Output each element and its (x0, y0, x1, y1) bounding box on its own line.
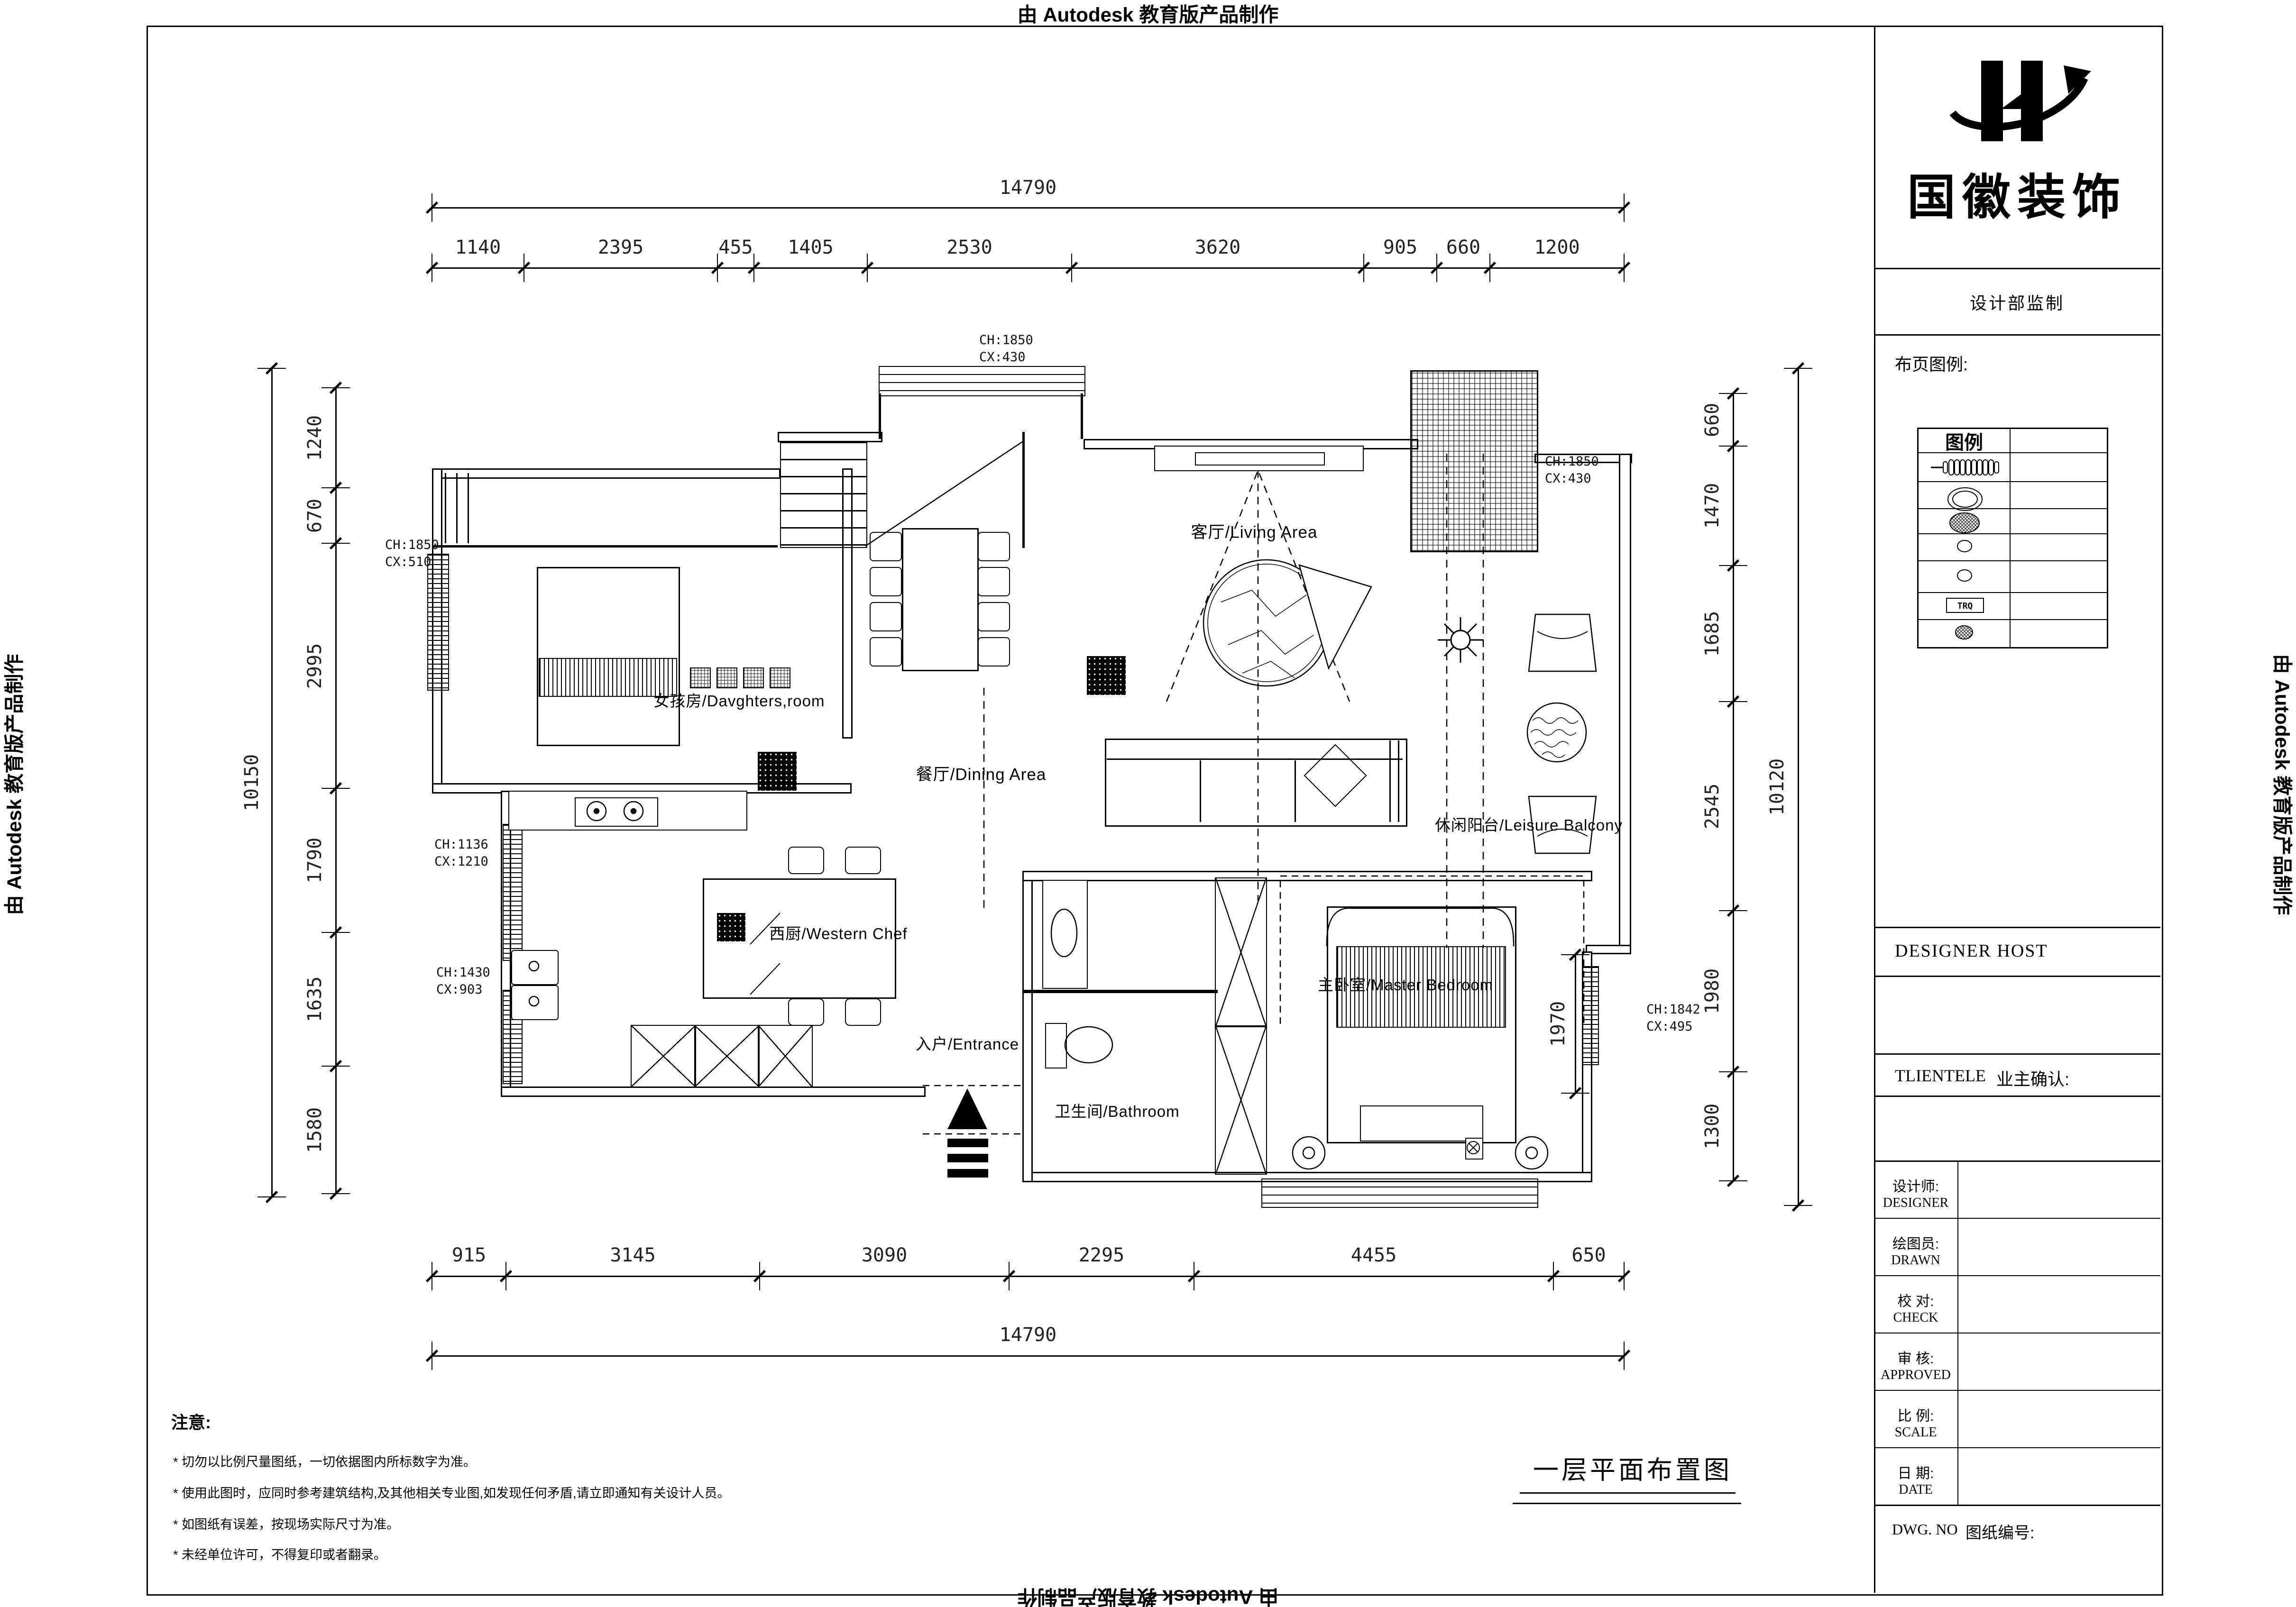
dimension-layer: 1479011402395455140525303620905660120091… (0, 0, 2296, 1607)
dimension-line (432, 207, 1624, 209)
dimension-label: 1980 (1701, 968, 1723, 1014)
extension-line (321, 788, 350, 789)
extension-line (321, 1193, 350, 1194)
extension-line (1363, 254, 1364, 282)
extension-line (1009, 1262, 1010, 1290)
dimension-label: 14790 (1000, 1324, 1056, 1346)
extension-line (717, 254, 718, 282)
extension-line (867, 254, 868, 282)
dimension-label: 915 (452, 1244, 486, 1266)
dimension-label: 4455 (1351, 1244, 1396, 1266)
dimension-label: 1635 (304, 977, 326, 1022)
extension-line (1719, 565, 1747, 566)
extension-line (1624, 193, 1625, 222)
extension-line (1719, 393, 1747, 394)
extension-line (1719, 1071, 1747, 1072)
extension-line (1719, 446, 1747, 447)
extension-line (257, 368, 286, 369)
dimension-line (432, 1276, 1624, 1277)
extension-line (432, 193, 432, 222)
extension-line (1071, 254, 1072, 282)
dimension-label: 660 (1446, 237, 1480, 258)
extension-line (321, 487, 350, 488)
dimension-label: 455 (718, 237, 753, 258)
extension-line (1489, 254, 1490, 282)
dimension-label: 2995 (304, 643, 326, 688)
extension-line (257, 1196, 286, 1197)
dimension-label: 1970 (1547, 1001, 1569, 1047)
extension-line (321, 387, 350, 388)
extension-line (321, 932, 350, 933)
extension-line (1784, 368, 1812, 369)
dimension-line (1733, 393, 1734, 1181)
extension-line (1624, 254, 1625, 282)
extension-line (1719, 1180, 1747, 1181)
extension-line (505, 1262, 506, 1290)
dimension-line (432, 1355, 1624, 1357)
extension-line (759, 1262, 760, 1290)
dimension-label: 670 (304, 498, 326, 532)
extension-line (523, 254, 524, 282)
dimension-label: 1200 (1534, 237, 1580, 258)
dimension-label: 14790 (1000, 177, 1056, 199)
extension-line (321, 543, 350, 544)
cad-sheet: 由 Autodesk 教育版产品制作 由 Autodesk 教育版产品制作 由 … (0, 0, 2296, 1607)
dimension-label: 1140 (455, 237, 501, 258)
dimension-label: 650 (1571, 1244, 1606, 1266)
dimension-label: 660 (1701, 402, 1723, 437)
extension-line (1194, 1262, 1194, 1290)
dimension-label: 1470 (1701, 483, 1723, 529)
extension-line (753, 254, 754, 282)
dimension-line (432, 267, 1624, 269)
extension-line (1553, 1262, 1554, 1290)
extension-line (1561, 954, 1589, 955)
extension-line (1719, 910, 1747, 911)
extension-line (1624, 1342, 1625, 1370)
extension-line (432, 1342, 432, 1370)
dimension-label: 2530 (946, 237, 992, 258)
extension-line (1561, 1093, 1589, 1094)
dimension-label: 3090 (862, 1244, 907, 1266)
dimension-label: 10150 (241, 754, 263, 811)
dimension-line (1575, 955, 1576, 1093)
extension-line (1436, 254, 1437, 282)
dimension-label: 2395 (598, 237, 643, 258)
dimension-label: 1580 (304, 1107, 326, 1152)
dimension-label: 3620 (1195, 237, 1240, 258)
dimension-label: 2545 (1701, 783, 1723, 829)
extension-line (432, 254, 432, 282)
dimension-label: 1240 (304, 415, 326, 460)
extension-line (432, 1262, 432, 1290)
dimension-line (335, 388, 337, 1194)
extension-line (1784, 1205, 1812, 1206)
dimension-label: 2295 (1079, 1244, 1124, 1266)
dimension-label: 1790 (304, 838, 326, 883)
extension-line (321, 1066, 350, 1067)
dimension-line (1798, 368, 1799, 1205)
dimension-label: 1300 (1701, 1104, 1723, 1149)
extension-line (1624, 1262, 1625, 1290)
extension-line (1719, 701, 1747, 702)
dimension-line (271, 368, 273, 1197)
dimension-label: 1405 (788, 237, 833, 258)
dimension-label: 905 (1383, 237, 1417, 258)
dimension-label: 10120 (1766, 758, 1788, 815)
dimension-label: 1685 (1701, 611, 1723, 656)
dimension-label: 3145 (610, 1244, 655, 1266)
